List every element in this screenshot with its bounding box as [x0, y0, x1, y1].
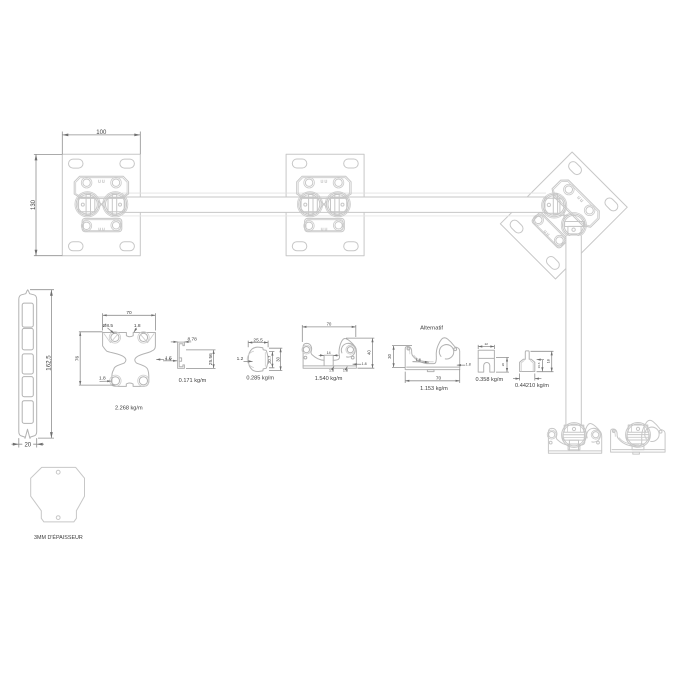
svg-text:2.268 kg/m: 2.268 kg/m: [115, 405, 143, 411]
svg-text:1.8: 1.8: [362, 362, 367, 366]
svg-text:14: 14: [327, 351, 331, 355]
svg-text:1.8: 1.8: [329, 369, 334, 373]
svg-text:20: 20: [501, 363, 505, 367]
svg-text:100: 100: [96, 130, 107, 136]
svg-text:1.2: 1.2: [237, 356, 244, 362]
svg-text:0.358 kg/m: 0.358 kg/m: [475, 377, 503, 383]
svg-text:30: 30: [387, 353, 392, 358]
svg-text:1.8: 1.8: [416, 358, 421, 362]
svg-text:0.44210 kg/m: 0.44210 kg/m: [515, 383, 549, 389]
svg-text:70: 70: [327, 321, 332, 326]
svg-text:22: 22: [485, 342, 489, 346]
svg-text:1.8: 1.8: [466, 362, 471, 366]
svg-text:1.8: 1.8: [99, 376, 106, 382]
svg-text:25.56: 25.56: [208, 353, 214, 365]
svg-text:0.285 kg/m: 0.285 kg/m: [246, 376, 274, 382]
svg-text:18: 18: [546, 359, 550, 363]
svg-text:130: 130: [31, 199, 37, 210]
svg-text:70: 70: [436, 375, 442, 381]
svg-text:1.8: 1.8: [343, 369, 348, 373]
svg-text:70: 70: [126, 310, 132, 316]
svg-text:Alternatif: Alternatif: [420, 325, 443, 331]
svg-text:1.8: 1.8: [134, 323, 141, 329]
svg-text:16.6: 16.6: [537, 362, 541, 368]
svg-text:40: 40: [367, 350, 372, 355]
svg-text:3MM D'ÉPAISSEUR: 3MM D'ÉPAISSEUR: [34, 534, 83, 541]
svg-text:30: 30: [275, 356, 280, 361]
svg-text:162,5: 162,5: [45, 355, 52, 371]
svg-text:8.78: 8.78: [188, 336, 198, 342]
svg-text:20: 20: [24, 442, 31, 448]
svg-text:1.540 kg/m: 1.540 kg/m: [315, 376, 343, 382]
svg-text:0.171 kg/m: 0.171 kg/m: [179, 378, 207, 384]
svg-text:25.5: 25.5: [253, 337, 263, 343]
svg-text:76: 76: [75, 356, 81, 362]
svg-text:20.7: 20.7: [267, 355, 272, 364]
svg-text:1.153 kg/m: 1.153 kg/m: [420, 386, 448, 392]
